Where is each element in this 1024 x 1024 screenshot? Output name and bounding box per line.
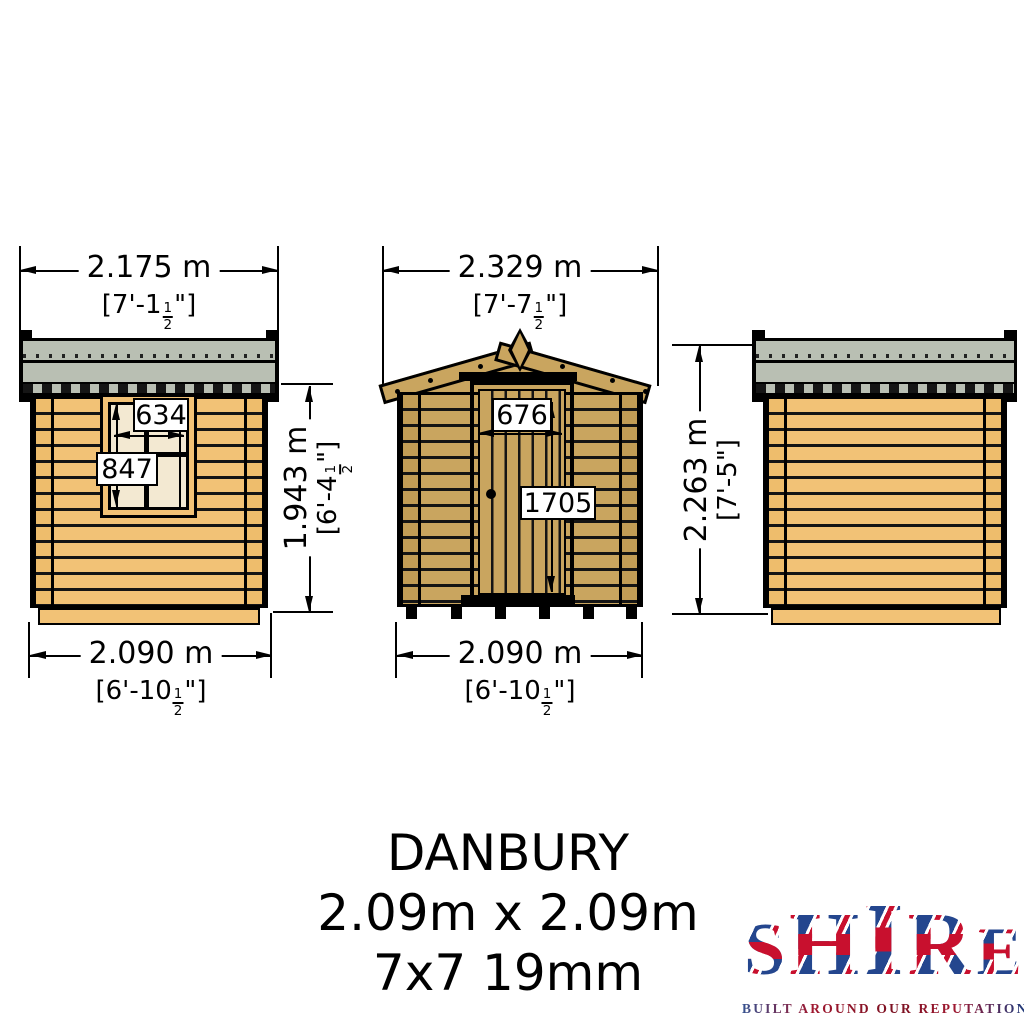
roof-fascia bbox=[23, 382, 275, 393]
shed-technical-drawing: 2.175 m [7'-112"] bbox=[0, 0, 1024, 1024]
roof-edge-line bbox=[23, 360, 275, 363]
extension-line bbox=[28, 622, 30, 678]
arrowhead-icon bbox=[112, 404, 120, 420]
roof-fascia bbox=[756, 382, 1014, 393]
nail-dot-icon bbox=[428, 378, 433, 383]
logo-letter: S bbox=[744, 908, 785, 993]
arrowhead-icon bbox=[20, 266, 36, 274]
corner-logs bbox=[983, 399, 1004, 605]
logo-letter: R bbox=[908, 893, 973, 996]
corner-logs bbox=[766, 399, 787, 605]
nail-dot-icon bbox=[610, 378, 615, 383]
door-sill bbox=[461, 595, 575, 606]
door-handle bbox=[486, 489, 496, 499]
dimension-metric: 2.175 m bbox=[79, 251, 220, 285]
corner-logs bbox=[619, 395, 640, 604]
arrowhead-icon bbox=[168, 431, 184, 439]
model-name: DANBURY bbox=[0, 826, 1016, 880]
dimension-imperial: [7'-712"] bbox=[465, 289, 575, 332]
roof-nails bbox=[23, 354, 275, 358]
extension-line bbox=[672, 613, 768, 615]
skid-foot bbox=[451, 606, 462, 619]
arrowhead-icon bbox=[642, 266, 658, 274]
logo-letter: I bbox=[863, 880, 903, 999]
dimension-imperial: [6'-1012"] bbox=[87, 675, 214, 718]
logo-tagline: BUILT AROUND OUR REPUTATION bbox=[742, 1001, 1024, 1017]
arrowhead-icon bbox=[262, 266, 278, 274]
roof-edge-line bbox=[756, 360, 1014, 363]
skid-foot bbox=[626, 606, 637, 619]
extension-line bbox=[672, 344, 756, 346]
roof-nails bbox=[756, 354, 1014, 358]
dimension-metric: 2.090 m bbox=[81, 637, 222, 671]
skid-foot bbox=[539, 606, 550, 619]
dimension-imperial: [6'-1012"] bbox=[456, 675, 583, 718]
skid-foot bbox=[495, 606, 506, 619]
window-width-label: 634 bbox=[133, 398, 189, 432]
door-width-label: 676 bbox=[492, 398, 552, 432]
arrowhead-icon bbox=[383, 266, 399, 274]
corner-logs bbox=[244, 399, 265, 605]
logo-letter: E bbox=[977, 912, 1022, 991]
extension-line bbox=[273, 611, 333, 613]
arrowhead-icon bbox=[30, 651, 46, 659]
nail-dot-icon bbox=[395, 389, 400, 394]
dimension-height: 1.943 m [6'-412"] bbox=[279, 420, 357, 557]
arrowhead-icon bbox=[397, 651, 413, 659]
dimension-imperial: [7'-112"] bbox=[94, 289, 204, 332]
logo-wordmark: S H I R E bbox=[742, 880, 1024, 999]
base-board bbox=[38, 608, 260, 625]
window-height-label: 847 bbox=[96, 452, 158, 486]
arrowhead-icon bbox=[256, 651, 272, 659]
dimension-imperial: [6'-412"] bbox=[313, 441, 355, 535]
extension-line bbox=[641, 622, 643, 678]
extension-line bbox=[19, 246, 21, 338]
arrowhead-icon bbox=[695, 346, 703, 362]
arrowhead-icon bbox=[305, 386, 313, 402]
nail-dot-icon bbox=[478, 364, 483, 369]
extension-line bbox=[395, 622, 397, 678]
corner-logs bbox=[400, 395, 421, 604]
arrowhead-icon bbox=[114, 431, 130, 439]
arrowhead-icon bbox=[547, 576, 555, 592]
arrowhead-icon bbox=[112, 490, 120, 506]
dimension-metric: 2.090 m bbox=[450, 637, 591, 671]
extension-line bbox=[270, 613, 272, 678]
dimension-imperial: [7'-5"] bbox=[713, 439, 743, 521]
skid-foot bbox=[583, 606, 594, 619]
nail-dot-icon bbox=[560, 364, 565, 369]
skid-foot bbox=[406, 606, 417, 619]
dimension-height: 2.263 m [7'-5"] bbox=[679, 412, 745, 549]
roof bbox=[753, 338, 1017, 396]
roof bbox=[20, 338, 278, 396]
dimension-metric: 2.329 m bbox=[450, 251, 591, 285]
extension-line bbox=[281, 383, 333, 385]
corner-logs bbox=[33, 399, 54, 605]
base-board bbox=[771, 608, 1001, 625]
arrowhead-icon bbox=[627, 651, 643, 659]
logo-letter: H bbox=[789, 893, 859, 996]
dimension-metric: 1.943 m bbox=[281, 426, 313, 551]
dimension-metric: 2.263 m bbox=[681, 418, 713, 543]
door-lintel bbox=[459, 372, 577, 381]
door-height-label: 1705 bbox=[520, 486, 596, 520]
arrowhead-icon bbox=[695, 598, 703, 614]
side-wall bbox=[763, 396, 1007, 608]
nail-dot-icon bbox=[643, 389, 648, 394]
shire-logo: S H I R E BUILT AROUND OUR REPUTATION bbox=[742, 880, 1024, 1010]
arrowhead-icon bbox=[305, 596, 313, 612]
extension-line bbox=[277, 246, 279, 338]
